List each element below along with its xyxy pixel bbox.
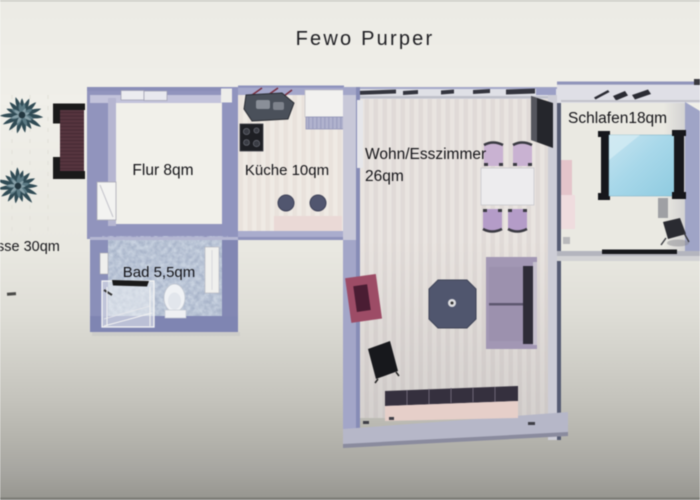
svg-text:Bad 5,5qm: Bad 5,5qm bbox=[123, 264, 196, 281]
svg-text:26qm: 26qm bbox=[365, 168, 404, 185]
svg-text:Fewo Purper: Fewo Purper bbox=[296, 28, 435, 50]
svg-text:Flur 8qm: Flur 8qm bbox=[132, 162, 193, 179]
svg-text:Wohn/Esszimmer: Wohn/Esszimmer bbox=[365, 146, 486, 163]
svg-text:sse 30qm: sse 30qm bbox=[0, 239, 60, 255]
svg-text:Schlafen18qm: Schlafen18qm bbox=[568, 110, 667, 127]
svg-text:Küche 10qm: Küche 10qm bbox=[245, 162, 329, 179]
